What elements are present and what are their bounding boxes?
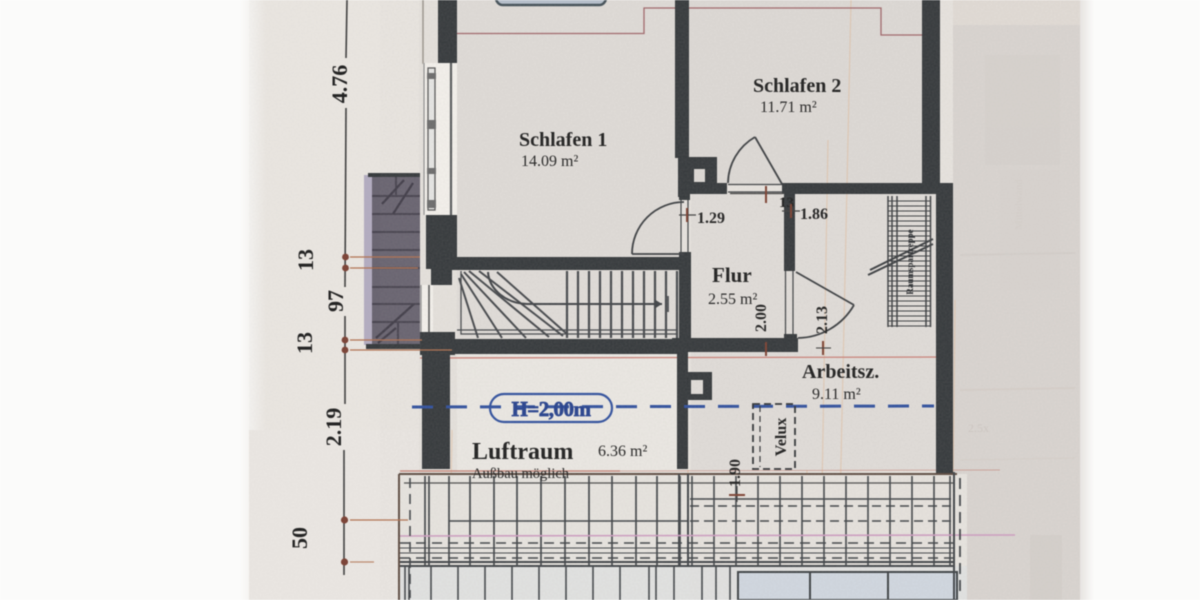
svg-text:Mittelwand: Mittelwand	[1013, 179, 1025, 230]
svg-text:2.5x: 2.5x	[968, 421, 989, 435]
